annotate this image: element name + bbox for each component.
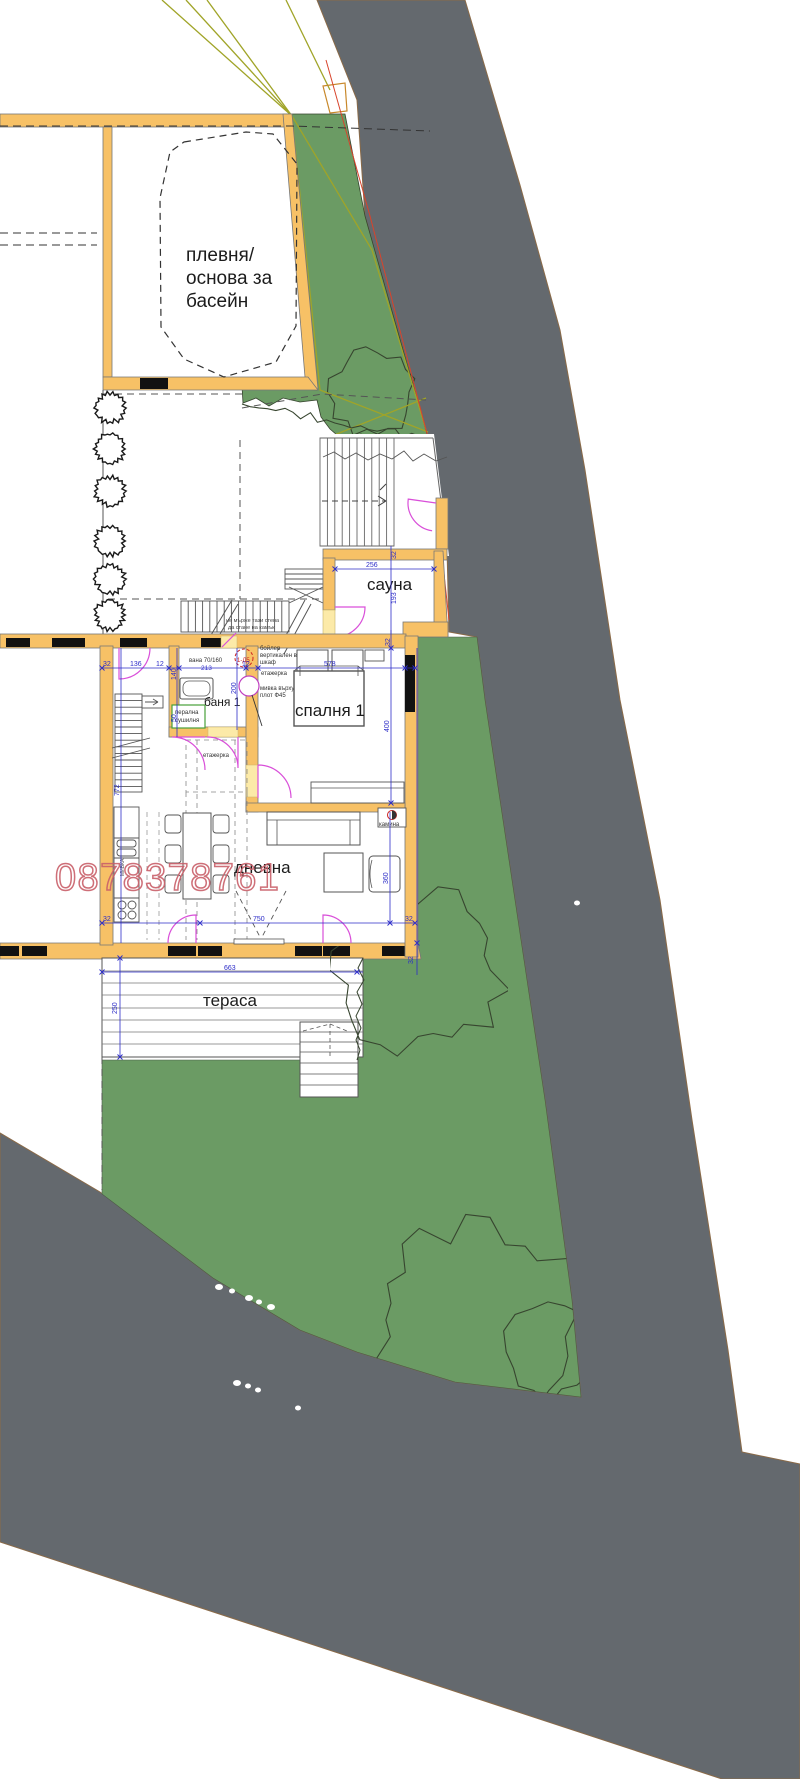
svg-text:бойлер: бойлер — [260, 645, 281, 652]
svg-text:етажерка: етажерка — [261, 671, 288, 677]
svg-text:193: 193 — [391, 592, 398, 604]
svg-text:12: 12 — [156, 661, 164, 668]
svg-text:578: 578 — [324, 661, 336, 668]
svg-text:басейн: басейн — [186, 291, 248, 312]
svg-text:140: 140 — [171, 668, 178, 680]
svg-text:12: 12 — [242, 661, 250, 668]
svg-text:сушилня: сушилня — [175, 718, 199, 724]
svg-text:не мърже тази стена: не мърже тази стена — [226, 618, 280, 624]
svg-text:плот Ф45: плот Ф45 — [260, 693, 286, 699]
svg-text:камина: камина — [379, 822, 400, 828]
svg-text:32: 32 — [103, 661, 111, 668]
svg-text:баня 1: баня 1 — [204, 695, 241, 709]
svg-text:да стане на камък: да стане на камък — [228, 625, 275, 631]
svg-text:основа за: основа за — [186, 268, 273, 289]
svg-text:250: 250 — [112, 1002, 119, 1014]
svg-text:256: 256 — [366, 562, 378, 569]
svg-text:спалня 1: спалня 1 — [295, 701, 365, 720]
svg-text:360: 360 — [383, 872, 390, 884]
svg-text:750: 750 — [253, 916, 265, 923]
svg-text:136: 136 — [130, 661, 142, 668]
svg-text:32: 32 — [103, 916, 111, 923]
svg-text:32: 32 — [391, 551, 398, 559]
svg-text:тераса: тераса — [203, 991, 257, 1010]
svg-text:плевня/: плевня/ — [186, 245, 255, 266]
svg-text:вертикален в: вертикален в — [260, 653, 297, 659]
svg-text:32: 32 — [385, 638, 392, 646]
svg-text:663: 663 — [224, 965, 236, 972]
svg-text:етажерка: етажерка — [203, 753, 230, 759]
svg-text:шкаф: шкаф — [260, 660, 276, 666]
svg-text:сауна: сауна — [367, 575, 413, 594]
svg-text:32: 32 — [405, 916, 413, 923]
svg-text:400: 400 — [384, 720, 391, 732]
svg-text:200: 200 — [231, 682, 238, 694]
svg-text:мивка върху: мивка върху — [260, 686, 294, 692]
svg-text:32: 32 — [408, 956, 415, 964]
svg-text:вана 70/160: вана 70/160 — [189, 658, 223, 664]
svg-text:0878378761: 0878378761 — [55, 857, 280, 899]
svg-text:50: 50 — [171, 714, 178, 722]
svg-text:772: 772 — [114, 784, 121, 796]
svg-text:213: 213 — [201, 665, 212, 672]
svg-text:перална: перална — [175, 710, 199, 716]
